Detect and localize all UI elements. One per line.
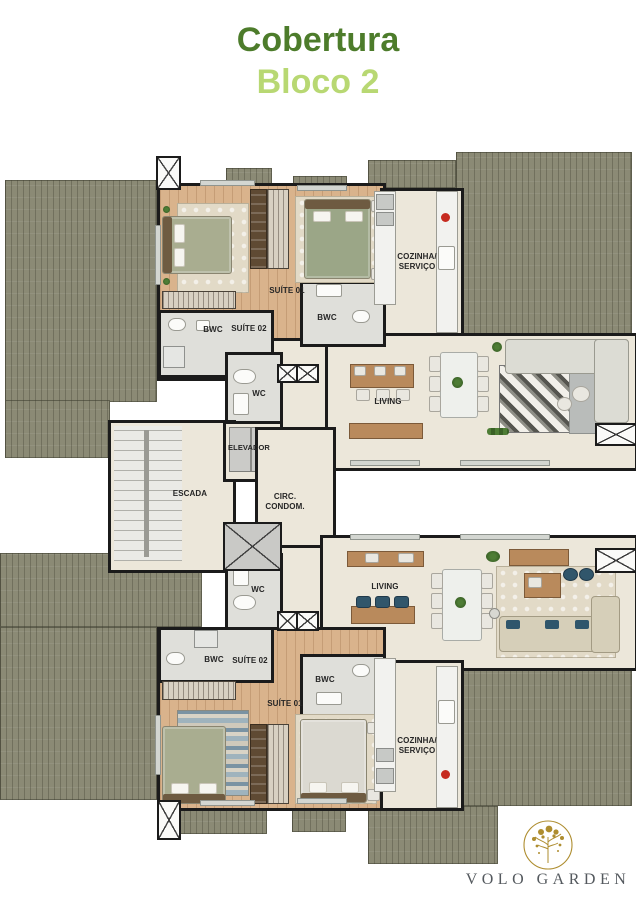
- plant: [163, 278, 170, 285]
- room-label-living-upper: LIVING: [358, 397, 418, 407]
- terrace-bottom-right: [456, 658, 632, 806]
- cooktop-icon: [441, 213, 450, 222]
- floor-lamp: [489, 608, 500, 619]
- sofa-upper-arm: [594, 339, 629, 423]
- bar-item: [394, 366, 406, 376]
- bed-headboard: [163, 217, 172, 273]
- toilet: [233, 369, 256, 384]
- dining-chair: [481, 573, 493, 589]
- bar-stool-navy: [375, 596, 390, 608]
- dining-chair: [477, 396, 489, 412]
- window: [460, 460, 550, 466]
- bed-pillow: [174, 224, 185, 243]
- room-label-living-lower: LIVING: [355, 582, 415, 592]
- coffee-table: [557, 397, 572, 411]
- sofa-pillow: [575, 620, 589, 629]
- window: [297, 185, 347, 191]
- room-label-elevador: ELEVADOR: [219, 443, 279, 453]
- toilet: [352, 664, 370, 677]
- bed-pillow: [171, 783, 189, 794]
- bed-pillow: [313, 211, 331, 222]
- dining-chair: [429, 376, 441, 392]
- breakfast-table-lower: [351, 606, 415, 624]
- terrace-top-right: [456, 152, 632, 338]
- dresser-upper: [162, 291, 236, 309]
- bed-pillow: [345, 211, 363, 222]
- appliance: [376, 212, 394, 226]
- bed-pillow: [341, 782, 359, 793]
- room-label-cozinha-upper: COZINHA/ SERVIÇO: [387, 252, 447, 273]
- shower: [194, 630, 218, 648]
- refrigerator: [376, 194, 394, 210]
- bar-item: [398, 553, 414, 563]
- shaft-x-icon: [277, 364, 298, 383]
- room-label-suite01-lower: SUÍTE 01: [257, 699, 313, 709]
- stair-rail: [144, 430, 149, 557]
- coffee-table-item: [528, 577, 542, 588]
- dining-chair: [431, 573, 443, 589]
- sofa-lower-arm: [591, 596, 620, 653]
- shaft-x-icon: [595, 423, 636, 446]
- room-label-circ-condom: CIRC. CONDOM.: [255, 492, 315, 513]
- dining-chair: [431, 593, 443, 609]
- wardrobe-lower: [250, 724, 267, 804]
- dining-chair: [477, 376, 489, 392]
- tv-console-lower: [509, 549, 569, 566]
- window: [155, 225, 161, 285]
- kitchen-sink: [438, 700, 455, 724]
- bed-pillow: [309, 782, 327, 793]
- shaft-x-icon: [277, 611, 298, 631]
- shaft-x-icon: [157, 800, 181, 840]
- coffee-table: [572, 386, 590, 402]
- table-plant: [452, 377, 463, 388]
- shaft-x-icon: [223, 522, 282, 571]
- bar-item: [374, 366, 386, 376]
- shower: [163, 346, 185, 368]
- plant: [492, 342, 502, 352]
- room-label-wc-upper: WC: [244, 389, 274, 399]
- terrace-bottom-left: [0, 627, 157, 800]
- plant: [486, 551, 500, 562]
- page-subtitle: Bloco 2: [0, 64, 636, 101]
- open-closet-lower-2: [267, 724, 289, 804]
- bed-pillow: [199, 783, 217, 794]
- terrace-top-left-extension: [5, 400, 110, 458]
- bed-pillow: [174, 248, 185, 267]
- volo-garden-logo-icon: [521, 818, 575, 872]
- table-plant: [455, 597, 466, 608]
- wardrobe-upper: [250, 189, 267, 269]
- bed-headboard: [305, 200, 370, 209]
- toilet: [352, 310, 370, 323]
- window: [350, 460, 420, 466]
- shaft-x-icon: [296, 364, 319, 383]
- shaft-x-icon: [296, 611, 319, 631]
- open-closet-lower: [162, 681, 236, 700]
- room-label-bwc-left-upper: BWC: [198, 325, 228, 335]
- room-label-wc-lower: WC: [243, 585, 273, 595]
- bar-item: [365, 553, 379, 563]
- window: [200, 800, 255, 806]
- vanity-sink: [316, 284, 342, 297]
- vanity-sink: [316, 692, 342, 705]
- page-title: Cobertura: [0, 22, 636, 59]
- refrigerator: [376, 768, 394, 784]
- window: [200, 180, 255, 186]
- pouf-navy: [563, 568, 578, 581]
- dining-chair: [481, 593, 493, 609]
- toilet: [168, 318, 186, 331]
- room-label-suite02-upper: SUÍTE 02: [221, 324, 277, 334]
- shaft-x-icon: [595, 548, 636, 573]
- bar-stool-navy: [356, 596, 371, 608]
- cooktop-icon: [441, 770, 450, 779]
- shaft-x-icon: [156, 156, 181, 190]
- toilet: [233, 595, 256, 610]
- terrace-ledge-bottom-1: [172, 807, 267, 834]
- open-closet-upper: [267, 189, 289, 269]
- terrace-ledge-bottom-2: [292, 808, 346, 832]
- room-label-escada: ESCADA: [160, 489, 220, 499]
- terrace-top-left: [5, 180, 157, 402]
- window: [350, 534, 420, 540]
- dining-chair: [477, 356, 489, 372]
- room-label-cozinha-lower: COZINHA/ SERVIÇO: [387, 736, 447, 757]
- toilet: [166, 652, 185, 665]
- plant: [163, 206, 170, 213]
- bar-stool-navy: [394, 596, 409, 608]
- sofa-pillow: [506, 620, 520, 629]
- window: [297, 798, 347, 804]
- sofa-pillow: [545, 620, 559, 629]
- planter: [487, 428, 509, 435]
- floor-plan-page: Cobertura Bloco 2: [0, 0, 636, 900]
- terrace-ledge-bottom-3: [368, 806, 498, 864]
- tv-console-upper: [349, 423, 423, 439]
- bed-suite02-upper: [162, 216, 232, 274]
- dining-chair: [431, 613, 443, 629]
- bar-item: [354, 366, 366, 376]
- room-label-suite02-lower: SUÍTE 02: [222, 656, 278, 666]
- room-label-bwc-right-upper: BWC: [312, 313, 342, 323]
- pouf-navy: [579, 568, 594, 581]
- dining-chair: [429, 396, 441, 412]
- bed-suite02-lower: [162, 726, 226, 804]
- dining-chair: [429, 356, 441, 372]
- bed-suite01-lower: [300, 719, 367, 803]
- logo-text: VOLO GARDEN: [460, 870, 636, 889]
- window: [155, 715, 161, 775]
- room-label-bwc-right-lower: BWC: [310, 675, 340, 685]
- window: [460, 534, 550, 540]
- room-label-suite01-upper: SUÍTE 01: [259, 286, 315, 296]
- bed-suite01-upper: [304, 199, 371, 279]
